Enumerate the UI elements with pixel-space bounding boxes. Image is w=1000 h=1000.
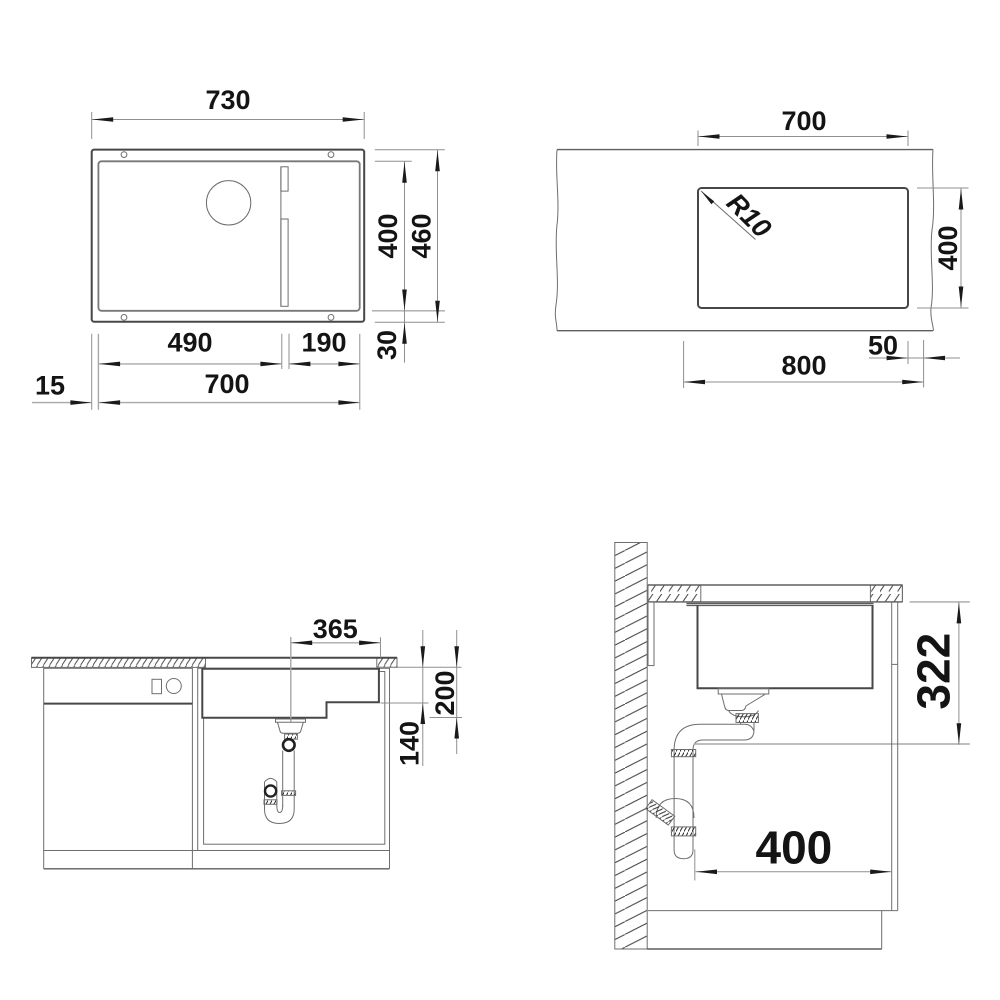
svg-text:400: 400 [373,213,403,258]
svg-text:200: 200 [430,670,460,715]
svg-text:30: 30 [372,330,402,360]
svg-text:365: 365 [313,614,358,644]
svg-text:140: 140 [394,721,424,766]
svg-text:800: 800 [781,351,826,381]
svg-text:700: 700 [781,106,826,136]
svg-text:322: 322 [907,633,959,710]
svg-text:700: 700 [204,369,249,399]
svg-text:730: 730 [205,85,250,115]
svg-text:15: 15 [35,371,65,401]
svg-text:400: 400 [933,225,963,270]
svg-text:400: 400 [756,821,833,873]
svg-text:190: 190 [301,328,346,358]
svg-text:50: 50 [868,331,898,361]
svg-text:460: 460 [407,213,437,258]
svg-text:490: 490 [167,328,212,358]
